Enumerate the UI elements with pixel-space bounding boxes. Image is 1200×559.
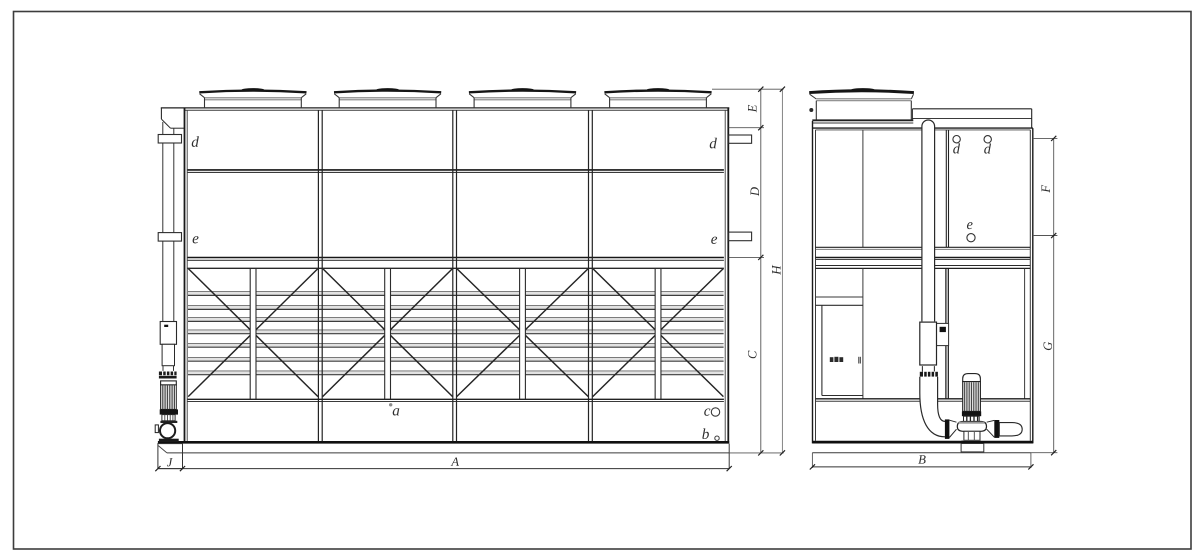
svg-text:e: e (966, 217, 973, 233)
svg-text:D: D (748, 187, 762, 197)
svg-text:b: b (702, 426, 710, 443)
svg-text:E: E (746, 104, 760, 113)
svg-text:C: C (746, 350, 760, 359)
svg-text:d: d (191, 134, 199, 151)
svg-text:a: a (392, 402, 400, 419)
svg-text:c: c (704, 403, 711, 420)
svg-text:F: F (1039, 185, 1053, 194)
svg-text:d: d (709, 135, 717, 152)
svg-text:e: e (711, 231, 718, 248)
svg-text:H: H (769, 265, 784, 276)
svg-text:G: G (1041, 342, 1055, 351)
svg-text:A: A (450, 455, 459, 469)
svg-text:e: e (192, 230, 199, 247)
svg-text:d: d (984, 142, 992, 158)
svg-text:d: d (953, 141, 961, 157)
svg-text:B: B (918, 453, 926, 467)
